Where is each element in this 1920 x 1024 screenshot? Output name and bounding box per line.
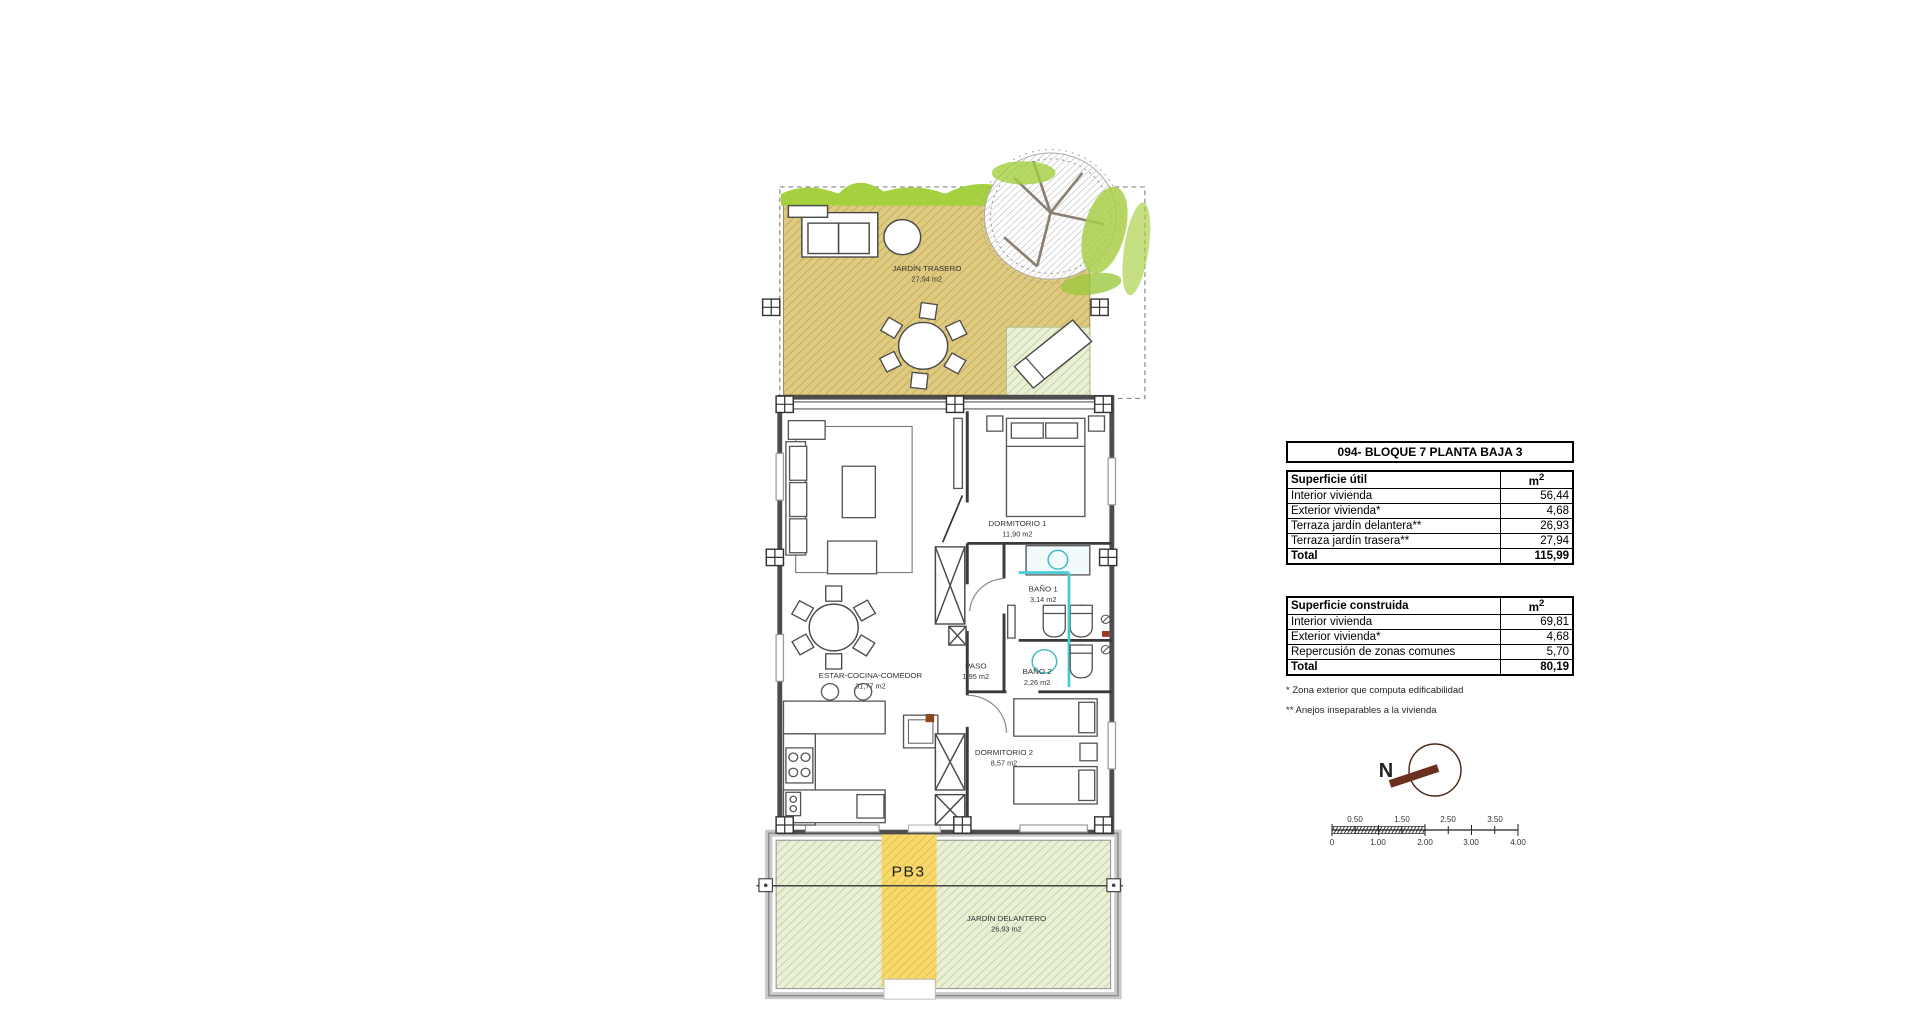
room-area-bano1: 3,14 m2 (1030, 596, 1057, 604)
table-row: Exterior vivienda* 4,68 (1287, 503, 1573, 518)
page: JARDÍN TRASERO 27,94 m2 PB3 JARDÍN DELAN… (0, 0, 1920, 1024)
pb3-path (881, 834, 936, 986)
scale-tick-label: 1.00 (1370, 838, 1386, 847)
room-area-jardin-trasero: 27,94 m2 (912, 276, 943, 284)
north-arrow-icon: N (1379, 744, 1461, 796)
tree-foliage (992, 161, 1056, 184)
footnote-2: ** Anejos inseparables a la vivienda (1286, 705, 1574, 716)
scale-tick-label: 0.50 (1347, 815, 1363, 824)
scale-tick-label: 0 (1330, 838, 1335, 847)
floor-plan: JARDÍN TRASERO 27,94 m2 PB3 JARDÍN DELAN… (732, 146, 1178, 1005)
table-row: Exterior vivienda* 4,68 (1287, 629, 1573, 644)
room-area-paso: 1,95 m2 (963, 673, 990, 681)
unit-header: m2 (1501, 471, 1574, 488)
front-garden: PB3 JARDÍN DELANTERO 26,93 m2 (757, 833, 1123, 999)
scale-bar: 0.50 1.50 2.50 3.50 0 1.00 2.00 3.00 4.0… (1330, 815, 1527, 847)
room-label-estar: ESTAR-COCINA-COMEDOR (819, 671, 923, 680)
table-total-row: Total 80,19 (1287, 659, 1573, 675)
entrance-gap (884, 979, 935, 999)
compass-and-scale: N 0.50 1.50 2.50 3.50 0 1.00 2.00 (1320, 730, 1580, 860)
superficie-construida-table: Superficie construida m2 Interior vivien… (1286, 596, 1574, 676)
room-area-dormitorio2: 8,57 m2 (991, 760, 1018, 768)
scale-tick-label: 1.50 (1394, 815, 1410, 824)
scale-tick-label: 2.00 (1417, 838, 1433, 847)
table-header-row: Superficie útil m2 (1287, 471, 1573, 488)
scale-tick-label: 4.00 (1510, 838, 1526, 847)
plan-title: 094- BLOQUE 7 PLANTA BAJA 3 (1286, 441, 1574, 463)
scale-tick-label: 2.50 (1440, 815, 1456, 824)
stove-icon (786, 748, 813, 783)
sink-icon (786, 792, 801, 815)
table-row: Terraza jardín delantera** 26,93 (1287, 518, 1573, 533)
room-label-paso: PASO (965, 662, 987, 671)
table-row: Terraza jardín trasera** 27,94 (1287, 533, 1573, 548)
room-area-jardin-delantero: 26,93 m2 (991, 926, 1022, 934)
scale-tick-label: 3.00 (1463, 838, 1479, 847)
table-row: Interior vivienda 69,81 (1287, 614, 1573, 629)
room-area-dormitorio1: 11,90 m2 (1002, 530, 1032, 538)
table-row: Repercusión de zonas comunes 5,70 (1287, 644, 1573, 659)
room-label-jardin-trasero: JARDÍN TRASERO (892, 264, 961, 273)
garden-sofa (788, 206, 877, 257)
superficie-util-table: Superficie útil m2 Interior vivienda 56,… (1286, 470, 1574, 565)
sensor-icon (926, 714, 935, 722)
footnote-1: * Zona exterior que computa edificabilid… (1286, 685, 1574, 696)
table-total-row: Total 115,99 (1287, 548, 1573, 564)
north-label: N (1379, 760, 1393, 782)
scale-tick-label: 3.50 (1487, 815, 1503, 824)
unit-header: m2 (1501, 597, 1574, 614)
table-row: Interior vivienda 56,44 (1287, 488, 1573, 503)
unit-label-pb3: PB3 (892, 864, 926, 881)
building: DORMITORIO 1 11,90 m2 BAÑO 1 3,14 m2 PAS… (776, 397, 1115, 832)
room-area-estar: 31,77 m2 (855, 682, 886, 690)
summary-panel: 094- BLOQUE 7 PLANTA BAJA 3 Superficie ú… (1286, 441, 1574, 716)
room-label-dormitorio2: DORMITORIO 2 (975, 748, 1033, 757)
garden-side-table (884, 220, 921, 255)
table-header: Superficie útil (1287, 471, 1501, 488)
room-label-bano2: BAÑO 2 (1023, 667, 1052, 676)
room-label-bano1: BAÑO 1 (1029, 584, 1058, 593)
room-label-jardin-delantero: JARDÍN DELANTERO (967, 914, 1046, 923)
table-header: Superficie construida (1287, 597, 1501, 614)
back-garden: JARDÍN TRASERO 27,94 m2 (780, 150, 1156, 399)
room-area-bano2: 2,26 m2 (1024, 679, 1051, 687)
room-label-dormitorio1: DORMITORIO 1 (988, 519, 1046, 528)
table-header-row: Superficie construida m2 (1287, 597, 1573, 614)
